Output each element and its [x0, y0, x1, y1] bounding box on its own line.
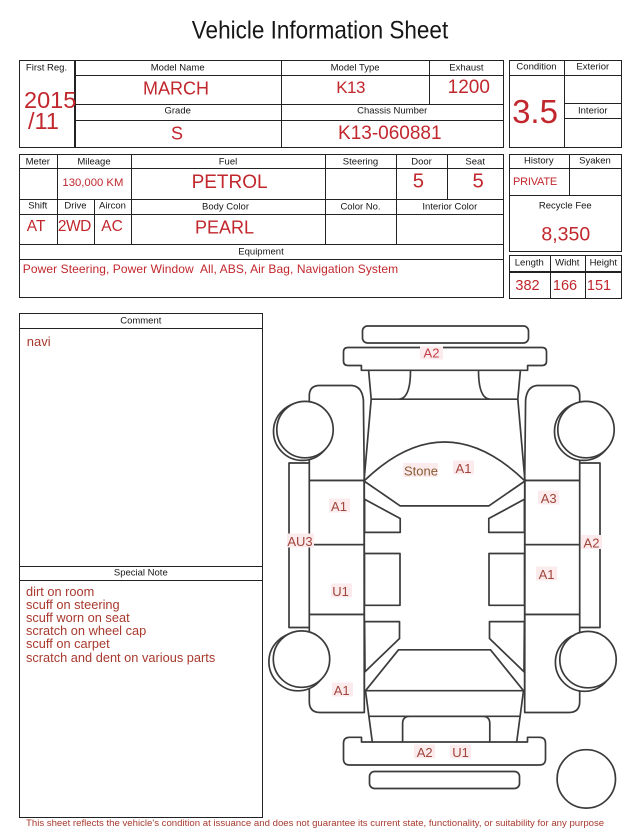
svg-text:A3: A3 — [541, 491, 557, 506]
svg-text:A1: A1 — [539, 567, 555, 582]
svg-text:A2: A2 — [424, 346, 440, 361]
svg-text:Stone: Stone — [404, 464, 438, 479]
svg-text:U1: U1 — [452, 745, 469, 760]
svg-text:AU3: AU3 — [287, 534, 312, 549]
svg-text:U1: U1 — [332, 584, 349, 599]
svg-text:A2: A2 — [584, 536, 600, 551]
svg-text:A1: A1 — [331, 499, 347, 514]
svg-text:A1: A1 — [456, 461, 472, 476]
svg-text:A1: A1 — [334, 683, 350, 698]
svg-text:A2: A2 — [417, 745, 433, 760]
